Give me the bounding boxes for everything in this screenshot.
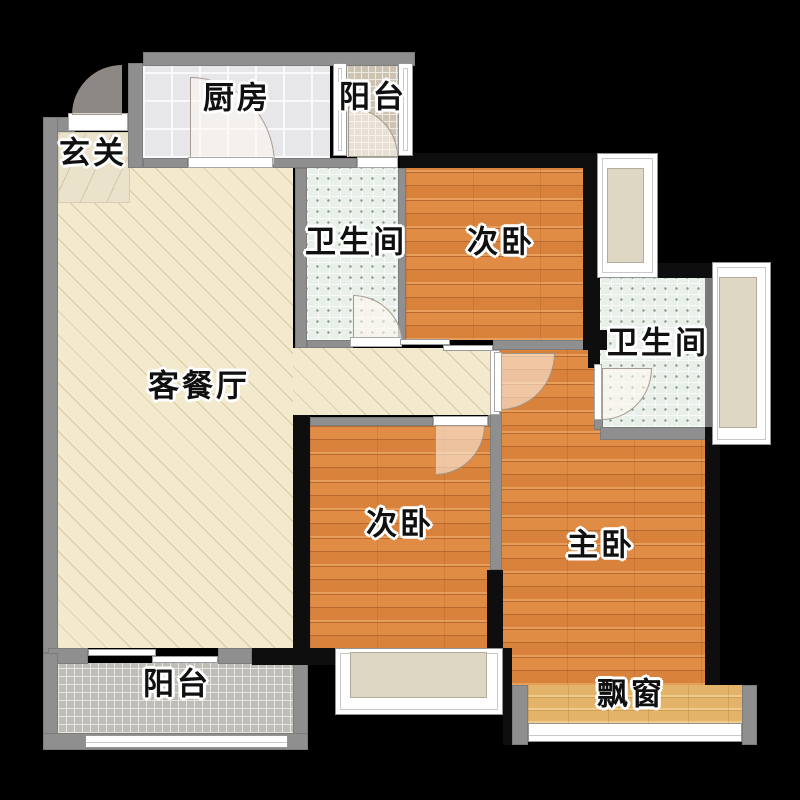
wall-segment-dark: [400, 153, 590, 168]
room-label-bay-window: 飘窗: [597, 679, 665, 710]
door-slab-bathroom-left: [350, 337, 402, 347]
wall-segment-dark: [588, 278, 600, 368]
wall-segment: [143, 52, 415, 66]
wall-segment: [307, 340, 353, 348]
window-sill: [607, 168, 644, 263]
wall-segment-dark: [705, 427, 720, 685]
window-balcony-bottom: [85, 735, 288, 748]
room-label-kitchen: 厨房: [203, 83, 271, 114]
floor-plan: 玄关 厨房 阳台 卫生间 次卧 卫生间 客餐厅 次卧 主卧 阳台 飘窗: [0, 0, 800, 800]
door-threshold-balcony-top: [357, 157, 398, 168]
room-label-entrance: 玄关: [59, 138, 127, 169]
wall-segment-dark: [503, 648, 512, 745]
sliding-door-balcony-bottom: [88, 649, 156, 656]
door-slab-bathroom-right: [594, 364, 602, 420]
wall-segment: [273, 158, 357, 168]
door-slab-entrance: [68, 113, 128, 131]
wall-segment: [742, 685, 757, 745]
sliding-door-bedroom-top: [443, 345, 493, 351]
wall-segment-dark: [487, 570, 503, 655]
window-sill: [719, 277, 757, 428]
wall-segment: [43, 117, 58, 653]
room-label-bathroom-right: 卫生间: [607, 328, 709, 359]
window-sill: [350, 652, 487, 698]
room-label-living-dining: 客餐厅: [148, 371, 250, 402]
room-hallway: [293, 348, 490, 415]
wall-segment: [512, 685, 528, 745]
wall-segment: [493, 340, 585, 350]
room-label-balcony-top: 阳台: [339, 82, 407, 113]
sliding-door-balcony-bottom: [152, 656, 218, 663]
room-label-bedroom-top: 次卧: [467, 227, 535, 258]
wall-segment-dark: [293, 415, 310, 655]
room-label-master-bedroom: 主卧: [567, 530, 635, 561]
door-arc-entrance: [72, 65, 122, 115]
wall-segment: [490, 413, 502, 570]
wall-segment: [600, 427, 713, 440]
wall-segment: [128, 63, 143, 168]
room-label-balcony-bottom: 阳台: [143, 669, 211, 700]
window-bay: [528, 723, 742, 742]
wall-segment: [143, 158, 188, 168]
room-label-bedroom-bottom: 次卧: [366, 509, 434, 540]
wall-segment: [310, 417, 433, 426]
door-slab-kitchen: [188, 157, 273, 168]
wall-segment-dark: [252, 648, 335, 665]
door-slab-master: [494, 352, 502, 412]
wall-segment-dark: [655, 263, 715, 278]
wall-segment: [218, 648, 252, 664]
room-label-bathroom-left: 卫生间: [305, 227, 407, 258]
